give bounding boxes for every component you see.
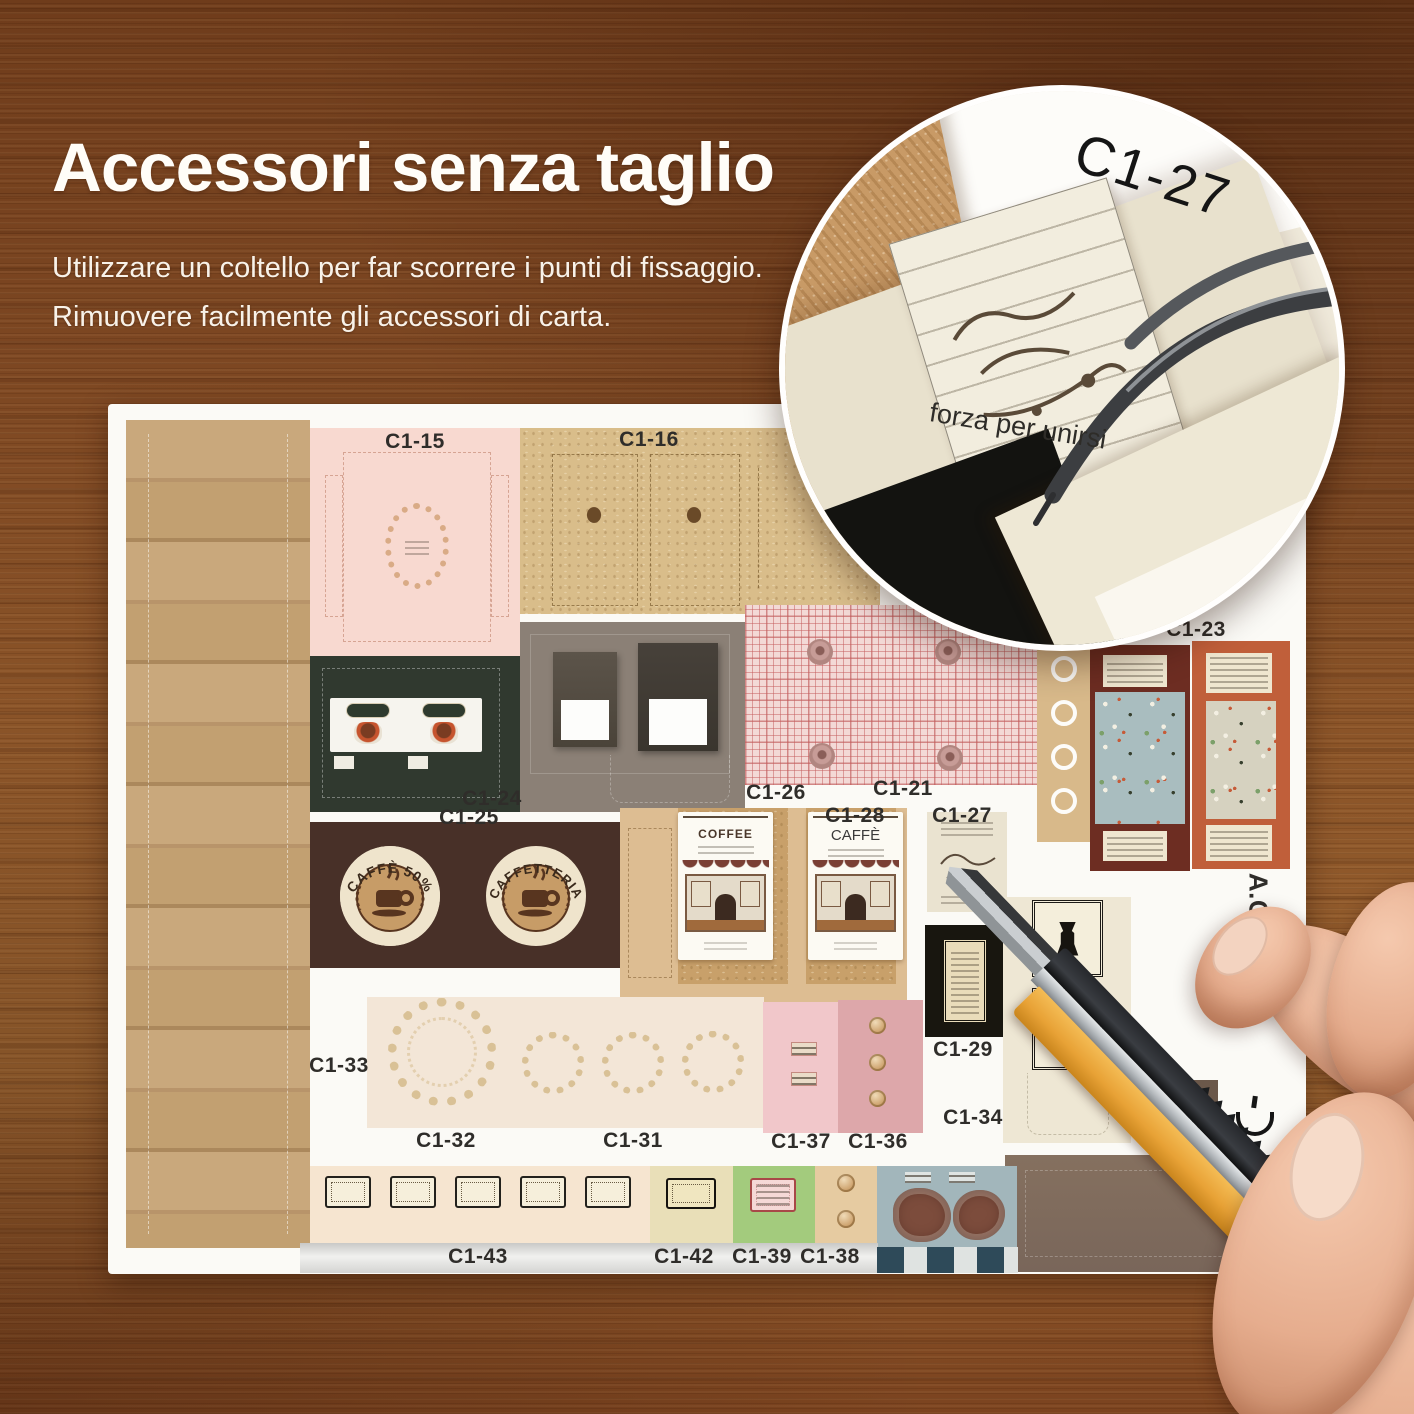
lace-doily-large (388, 998, 496, 1106)
maroon-floral-panel (1090, 645, 1190, 871)
ornate-mini-label (325, 1176, 371, 1208)
tweezers-icon (785, 91, 1345, 651)
bag-subtext-lines (828, 847, 884, 857)
shop-window (691, 881, 711, 907)
lace-doily-small (602, 1032, 664, 1094)
bag-footer-lines (704, 940, 747, 950)
doily-ring (1051, 744, 1077, 770)
button-panel (838, 1000, 923, 1133)
part-label-c1-34: C1-34 (943, 1106, 1003, 1130)
bag-header: COFFEE (683, 816, 768, 858)
ingredient-label (1103, 831, 1167, 861)
shop-window (821, 881, 841, 907)
ornate-mini-label (666, 1178, 716, 1209)
label-text-lines (756, 1184, 790, 1206)
doily-ring (1051, 788, 1077, 814)
terracotta-floral-panel (1192, 641, 1290, 869)
label-border (591, 1182, 625, 1202)
doily-panel (367, 997, 764, 1128)
green-label-strip (733, 1166, 815, 1243)
snap-button (937, 745, 963, 771)
gold-button (869, 1017, 886, 1034)
bag-footer-lines (834, 940, 877, 950)
part-label-c1-39: C1-39 (732, 1245, 792, 1269)
coffee-label-oval (346, 703, 390, 718)
wood-paper-strip (126, 420, 310, 1248)
badge-caffe-50: CAFFÈ 50% (334, 838, 446, 950)
gold-button (837, 1210, 855, 1228)
box-end-tab (408, 756, 428, 769)
coffee-shop-bag: COFFEE (678, 812, 773, 960)
label-text-lines (1210, 829, 1268, 857)
coffee-badge-panel: CAFFÈ 50% CAFFETTERIA (310, 822, 620, 968)
part-label-c1-16: C1-16 (619, 428, 679, 452)
label-border (461, 1182, 495, 1202)
box-face-strip (330, 698, 482, 752)
part-label-c1-42: C1-42 (654, 1245, 714, 1269)
part-label-c1-28: C1-28 (825, 804, 885, 828)
part-label-c1-43: C1-43 (448, 1245, 508, 1269)
lace-doily-small (682, 1031, 744, 1093)
bag-title-overlay: CAFFÈ (813, 827, 898, 844)
page-title: Accessori senza taglio (52, 128, 774, 207)
mini-tag (791, 1072, 817, 1086)
lace-motif (893, 1188, 951, 1242)
lace-motif (953, 1190, 1005, 1240)
part-label-c1-32: C1-32 (416, 1129, 476, 1153)
box-flap-outline (325, 475, 343, 617)
shop-counter (817, 920, 894, 930)
emblem-text-lines (405, 539, 429, 555)
doily-ring (1051, 700, 1077, 726)
ingredient-label (1206, 653, 1272, 693)
logo-mark (686, 506, 702, 524)
part-label-c1-37: C1-37 (771, 1130, 831, 1154)
box-template-outline (650, 454, 740, 606)
part-label-c1-29: C1-29 (933, 1038, 993, 1062)
mini-label (905, 1172, 931, 1183)
awning-garland (682, 860, 769, 872)
box-end-tab (334, 756, 354, 769)
pink-tag-panel (763, 1002, 838, 1133)
mini-labels-strip (310, 1166, 650, 1243)
button-strip (815, 1166, 877, 1243)
part-label-c1-15: C1-15 (385, 430, 445, 454)
subtitle-line-2: Rimuovere facilmente gli accessori di ca… (52, 301, 774, 334)
label-border (672, 1184, 710, 1203)
shop-window (740, 881, 760, 907)
part-label-c1-25: C1-25 (439, 806, 499, 830)
product-photo-papercraft-kit: Accessori senza taglio Utilizzare un col… (0, 0, 1414, 1414)
ornate-mini-label (585, 1176, 631, 1208)
box-flap-outline (491, 475, 509, 617)
shop-window (870, 881, 890, 907)
headline-block: Accessori senza taglio Utilizzare un col… (52, 128, 774, 334)
red-ornate-label (750, 1178, 796, 1212)
part-label-c1-21: C1-21 (873, 777, 933, 801)
wreath-emblem (385, 503, 449, 589)
part-label-c1-36: C1-36 (848, 1130, 908, 1154)
cabinet-window (561, 700, 609, 740)
pink-box-panel (310, 428, 520, 656)
ornate-mini-label (520, 1176, 566, 1208)
doily-inner-ring (407, 1017, 477, 1087)
gold-button (869, 1054, 886, 1071)
storefront-illustration (685, 874, 766, 932)
ornate-mini-label (390, 1176, 436, 1208)
cabinet-piece (638, 643, 718, 751)
floral-print (1095, 692, 1185, 824)
coffee-cup-photo (354, 722, 382, 744)
storefront-illustration (815, 874, 896, 932)
single-label-strip (650, 1166, 733, 1243)
ingredient-label (1103, 655, 1167, 687)
label-border (526, 1182, 560, 1202)
lace-doily-small (522, 1032, 584, 1094)
bag-title: COFFEE (683, 827, 768, 841)
part-label-c1-38: C1-38 (800, 1245, 860, 1269)
ingredient-label (1206, 825, 1272, 861)
part-label-c1-31: C1-31 (603, 1129, 663, 1153)
label-text-lines (1210, 657, 1268, 689)
subtitle-line-1: Utilizzare un coltello per far scorrere … (52, 252, 774, 285)
blue-lace-panel (877, 1166, 1017, 1247)
snap-button (809, 743, 835, 769)
label-text-lines (1107, 835, 1163, 857)
coffee-cup-photo (430, 722, 458, 744)
bag-subtext-lines (698, 844, 754, 854)
part-label-c1-33: C1-33 (309, 1054, 369, 1078)
coffee-label-oval (422, 703, 466, 718)
bag-outline-dashed (628, 828, 672, 978)
mini-label (949, 1172, 975, 1183)
gray-furniture-panel (520, 622, 745, 812)
mini-tag (791, 1042, 817, 1056)
doily-ring (1051, 656, 1077, 682)
coffee-shop-bag: CAFFÈ (808, 812, 903, 960)
cabinet-window (649, 699, 707, 745)
label-border (396, 1182, 430, 1202)
label-border (331, 1182, 365, 1202)
navy-stripe-band (877, 1247, 1018, 1273)
ornate-mini-label (455, 1176, 501, 1208)
part-label-c1-26: C1-26 (746, 781, 806, 805)
cut-guide-dashes (148, 434, 288, 1234)
shop-counter (687, 920, 764, 930)
floral-print (1206, 701, 1276, 819)
awning-garland (812, 860, 899, 872)
part-label-c1-27: C1-27 (932, 804, 992, 828)
box-template-outline (552, 454, 638, 606)
cabinet-piece (553, 652, 617, 747)
gold-button (869, 1090, 886, 1107)
tote-outline-dashed (610, 755, 730, 803)
label-text-lines (1107, 659, 1163, 683)
badge-caffetteria: CAFFETTERIA (480, 838, 592, 950)
logo-mark (586, 506, 602, 524)
magnifier-inset: C1-27 forza per unirsi (779, 85, 1345, 651)
gold-button (837, 1174, 855, 1192)
